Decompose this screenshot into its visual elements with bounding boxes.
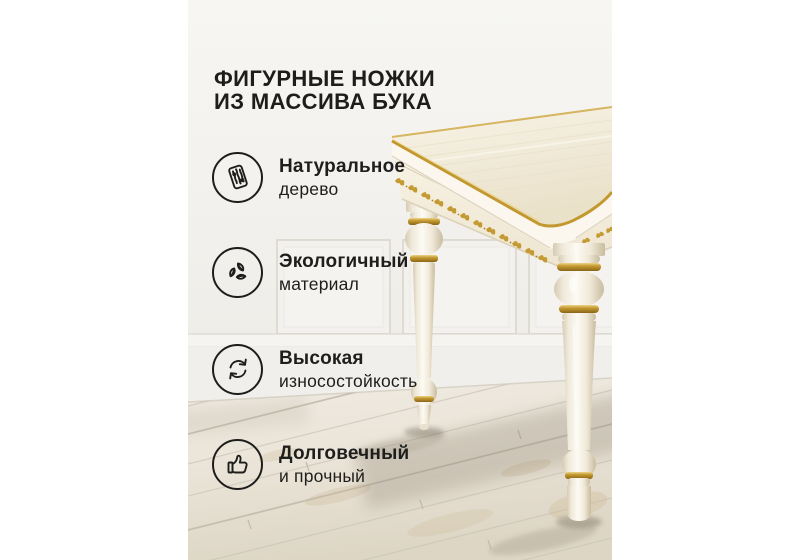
product-card: ФИГУРНЫЕ НОЖКИ ИЗ МАССИВА БУКА xyxy=(188,0,612,560)
headline-line-1: ФИГУРНЫЕ НОЖКИ xyxy=(214,67,435,90)
feature-title: Высокая xyxy=(279,347,417,370)
feature-subtitle: материал xyxy=(279,273,409,295)
headline: ФИГУРНЫЕ НОЖКИ ИЗ МАССИВА БУКА xyxy=(214,67,435,113)
feature-subtitle: дерево xyxy=(279,178,405,200)
feature-item-durable: Долговечный и прочный xyxy=(212,438,409,490)
headline-line-2: ИЗ МАССИВА БУКА xyxy=(214,90,435,113)
feature-label: Экологичный материал xyxy=(279,250,409,295)
refresh-arrows-icon xyxy=(212,344,263,395)
page: ФИГУРНЫЕ НОЖКИ ИЗ МАССИВА БУКА xyxy=(0,0,800,560)
feature-item-wear-resistance: Высокая износостойкость xyxy=(212,343,417,395)
feature-item-natural-wood: Натуральное дерево xyxy=(212,151,405,203)
feature-subtitle: и прочный xyxy=(279,465,409,487)
feature-title: Натуральное xyxy=(279,155,405,178)
eco-leaves-icon xyxy=(212,247,263,298)
feature-label: Долговечный и прочный xyxy=(279,442,409,487)
feature-title: Долговечный xyxy=(279,442,409,465)
feature-title: Экологичный xyxy=(279,250,409,273)
feature-label: Высокая износостойкость xyxy=(279,347,417,392)
wood-grain-icon xyxy=(212,152,263,203)
feature-subtitle: износостойкость xyxy=(279,370,417,392)
thumbs-up-icon xyxy=(212,439,263,490)
feature-item-eco-material: Экологичный материал xyxy=(212,246,409,298)
feature-label: Натуральное дерево xyxy=(279,155,405,200)
